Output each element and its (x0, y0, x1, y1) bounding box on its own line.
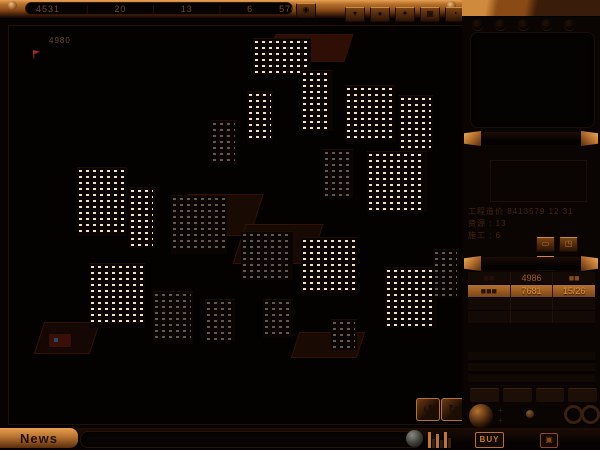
eq-bar (432, 439, 435, 448)
lit-windows (387, 270, 435, 326)
building[interactable] (205, 300, 235, 342)
eq-bar (428, 432, 431, 448)
section-divider (464, 256, 598, 271)
pipe-decoration (462, 0, 600, 17)
lit-windows (303, 73, 331, 129)
building[interactable] (153, 292, 193, 344)
lit-windows (249, 94, 271, 140)
star-icon[interactable]: ✦ (395, 7, 415, 22)
table-row[interactable] (468, 298, 595, 311)
status-field: 4531 (36, 4, 60, 14)
table-cell (553, 298, 595, 310)
flag-icon (33, 50, 40, 59)
lit-windows (79, 170, 125, 234)
city-viewport[interactable]: 4980 ↺↻ (8, 25, 464, 425)
building[interactable] (77, 168, 127, 236)
lit-windows (213, 123, 235, 163)
lit-windows (347, 88, 393, 140)
building[interactable] (263, 300, 293, 338)
building[interactable] (247, 92, 273, 142)
table-cell (553, 311, 595, 323)
table-cell (511, 311, 554, 323)
lit-windows (325, 152, 351, 196)
table-cell: ■■ (468, 272, 511, 284)
building[interactable] (89, 264, 145, 328)
rivet-icon (8, 1, 17, 10)
lit-windows (243, 234, 291, 278)
status-field: 6 (247, 4, 253, 14)
table-row[interactable] (468, 311, 595, 324)
separator: | (219, 4, 221, 14)
plus-icon: + (498, 406, 503, 415)
info-row: 工程造价 8413579 12 31 (468, 206, 596, 218)
toolbar: ▾●✦▦◔ (345, 0, 470, 18)
building[interactable] (399, 96, 433, 150)
lit-windows (401, 98, 431, 148)
status-field: 13 (181, 4, 193, 14)
lit-windows (155, 294, 191, 342)
lit-windows (265, 302, 291, 336)
buy-button[interactable]: BUY (475, 432, 504, 448)
table-cell: ■■ (553, 272, 595, 284)
building[interactable] (367, 152, 427, 212)
building[interactable] (253, 39, 311, 75)
person-icon[interactable]: ● (370, 7, 390, 22)
divider-cap-icon (581, 131, 598, 146)
section-divider (464, 131, 598, 146)
cartridge-slot[interactable] (470, 388, 499, 402)
eq-bar (444, 432, 447, 448)
building[interactable] (171, 196, 227, 254)
layout-icon[interactable]: ◳ (559, 237, 578, 252)
building[interactable] (331, 320, 357, 350)
building[interactable] (433, 250, 459, 298)
map-overlay-value: 4980 (49, 36, 71, 45)
game-window: 4531|20|13|6570630 ◉ ▾●✦▦◔ 4980 ↺↻ 工程造价 … (0, 0, 600, 450)
cartridge-slot[interactable] (568, 388, 597, 402)
cartridge-slot[interactable] (536, 388, 565, 402)
table-cell (468, 311, 511, 323)
dial-right[interactable] (581, 405, 600, 424)
window-icon[interactable]: ▭ (536, 237, 555, 252)
flag-icon[interactable]: ▾ (345, 7, 365, 22)
lit-windows (255, 41, 309, 73)
building[interactable] (345, 86, 395, 142)
side-panel: 工程造价 8413579 12 31资源 : 13施工 : 6 ▭◳◱ ■■49… (462, 0, 600, 450)
rotate-left-button[interactable]: ↺ (416, 398, 440, 421)
stats-table: ■■4986■■■■■768115/26 (468, 272, 595, 324)
news-label-plaque: News (0, 428, 78, 448)
table-cell: ■■■ (468, 285, 511, 297)
camera-button[interactable]: ◉ (296, 3, 316, 18)
lit-windows (173, 198, 225, 252)
vent-hole-icon (472, 19, 483, 30)
table-cell: 4986 (511, 272, 554, 284)
separator: | (86, 4, 88, 14)
lit-windows (435, 252, 457, 296)
vent-hole-icon (495, 19, 506, 30)
building[interactable] (301, 238, 357, 296)
status-readout: 4531|20|13|6570630 (25, 2, 293, 15)
lit-windows (303, 240, 355, 294)
news-bar: News BUY ▣ (0, 428, 600, 450)
table-cell (468, 298, 511, 310)
vent-hole-icon (564, 19, 575, 30)
lit-windows (369, 154, 425, 210)
rotate-right-button[interactable]: ↻ (441, 398, 464, 421)
separator: | (152, 4, 154, 14)
building[interactable] (129, 188, 155, 248)
lit-windows (91, 266, 143, 326)
lit-windows (131, 190, 153, 246)
plus-icon: + (498, 416, 503, 425)
slot-row (470, 388, 597, 402)
info-outline-box (490, 160, 587, 202)
table-stripes (468, 352, 595, 386)
lit-windows (333, 322, 355, 348)
volume-knob[interactable] (469, 404, 493, 428)
ticker-handle[interactable] (406, 430, 423, 447)
grid-icon[interactable]: ▦ (420, 7, 440, 22)
divider-cap-icon (464, 256, 481, 271)
eject-button[interactable]: ▣ (540, 433, 558, 448)
table-cell: 15/26 (553, 285, 595, 297)
vent-holes (472, 17, 600, 31)
building[interactable] (241, 232, 293, 280)
table-cell: 7681 (511, 285, 554, 297)
building[interactable] (385, 268, 437, 328)
building[interactable] (301, 71, 333, 131)
info-row: 资源 : 13 (468, 218, 596, 230)
building[interactable] (211, 121, 237, 165)
vent-hole-icon (518, 19, 529, 30)
news-ticker[interactable] (80, 431, 422, 448)
eq-bar (448, 438, 451, 448)
status-field: 20 (114, 4, 126, 14)
divider-cap-icon (581, 256, 598, 271)
minimap[interactable] (470, 32, 595, 128)
table-cell (511, 298, 554, 310)
cartridge-slot[interactable] (503, 388, 532, 402)
eq-bar (436, 434, 439, 448)
vehicle-sprite[interactable] (49, 334, 71, 347)
small-knob[interactable] (526, 410, 534, 418)
eq-bar (440, 440, 443, 448)
equalizer-icon (428, 430, 462, 448)
news-label: News (20, 431, 58, 446)
building[interactable] (323, 150, 353, 198)
table-row[interactable]: ■■■768115/26 (468, 285, 595, 298)
divider-cap-icon (464, 131, 481, 146)
vent-hole-icon (541, 19, 552, 30)
table-row[interactable]: ■■4986■■ (468, 272, 595, 285)
lit-windows (207, 302, 233, 340)
